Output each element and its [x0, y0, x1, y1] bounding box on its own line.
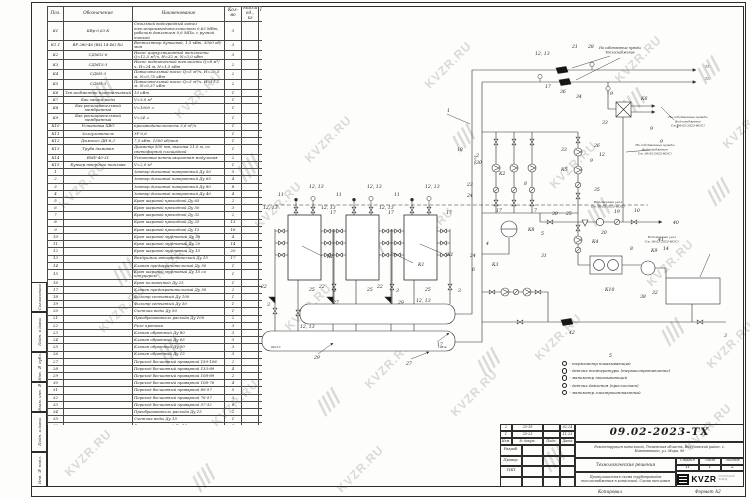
sheet-title: Принципиальная схема трубопроводов тепло… [575, 472, 676, 487]
diagram-label: 5 [541, 231, 544, 237]
role-cell [560, 445, 575, 456]
diagram-label: К8 [527, 227, 535, 233]
role-cell [543, 456, 560, 467]
diagram-label: 22 [318, 284, 325, 290]
diagram-label: 24 [466, 193, 473, 199]
diagram-label: 22 [260, 284, 267, 290]
diagram-label: 27 [405, 361, 412, 367]
diagram-label: 9 [650, 126, 653, 132]
revision-cell [543, 431, 560, 438]
diagram-label: 3 [396, 288, 399, 294]
role-cell [560, 477, 575, 488]
diagram-label: 21 [571, 44, 578, 50]
diagram-label: 38 [640, 294, 646, 300]
role-cell [500, 477, 522, 488]
diagram-label: 6 [472, 267, 475, 273]
document-number: 09.02-2023-ТХ [575, 424, 744, 442]
diagram-label: 26 [593, 143, 600, 149]
role-cell [522, 445, 543, 456]
diagram-label: 4 [485, 241, 489, 247]
stage-value: 1 [699, 465, 721, 472]
diagram-label: 25 [308, 287, 315, 293]
diagram-label: 8 [524, 181, 527, 187]
section-name: Технологические решения [575, 458, 676, 472]
kvzr-logo: KVZR КОТЕЛЬНЫЙ ЗАВОД [677, 474, 743, 485]
diagram-label: 7 [534, 208, 537, 214]
supply-main [455, 70, 696, 314]
revision-header: № докум. [512, 438, 543, 445]
diagram-label: 17 [545, 84, 551, 90]
diagram-label: 12, 13 [416, 298, 431, 304]
legend-item: - датчик давления (прессостат) [562, 382, 712, 389]
role-cell [522, 477, 543, 488]
diagram-label: 12, 13 [300, 324, 315, 330]
diagram-label: К1 [446, 252, 454, 258]
diagram-label: 10 [634, 208, 640, 214]
legend-item: - манометр электроконтактный [562, 389, 712, 396]
diagram-label: 33 [602, 120, 608, 126]
role-cell [543, 466, 560, 477]
diagram-label: 25 [424, 287, 431, 293]
role-cell [560, 456, 575, 467]
diagram-label: 12 [599, 152, 605, 158]
diagram-label: 1 [447, 108, 450, 114]
diagram-callout-line: Теплоснабжение [605, 51, 634, 55]
revision-cell: 11.23 [560, 431, 575, 438]
diagram-label: 42 [568, 330, 575, 336]
diagram-label: 89х3,5 [271, 345, 281, 349]
diagram-label: К1 [326, 254, 334, 260]
diagram-label: 29 [397, 300, 404, 306]
diagram-callout-line: На собственные нужды [598, 46, 641, 50]
diagram-label: 14 [663, 246, 669, 252]
diagram-callout-line: См. 09.02-2023-ИОС1 [671, 124, 705, 128]
revision-cell: 02.24 [560, 424, 575, 431]
tank-k9 [641, 261, 655, 275]
instrument-circle-icon [562, 361, 567, 366]
logo-cell: KVZR КОТЕЛЬНЫЙ ЗАВОД [676, 471, 744, 487]
title-block: 09.02-2023-ТХ Реконструкция котельной, Т… [500, 424, 744, 487]
kvzr-logo-icon [677, 474, 689, 485]
diagram-label: 30 [476, 160, 482, 166]
drawing-sheet: KVZR.RUKVZR.RUKVZR.RUKVZR.RUKVZR.RUKVZR.… [0, 0, 750, 500]
diagram-label: 24 [469, 253, 476, 259]
diagram-label: 11 [394, 192, 400, 198]
diagram-label: 11 [336, 192, 342, 198]
diagram-label: 12, 13 [263, 205, 278, 211]
diagram-label: 12, 13 [535, 51, 550, 57]
revision-cell: 25-19 [512, 424, 543, 431]
role-cell: Провер. [500, 456, 522, 467]
diagram-label: 30 [552, 211, 558, 217]
diagram-label: 25 [366, 287, 373, 293]
role-cell [522, 456, 543, 467]
diagram-label: 18 [457, 147, 463, 153]
diagram-label: 28 [587, 44, 594, 50]
stage-value: 2 [721, 465, 744, 472]
diagram-label: 108х4 [438, 345, 447, 349]
copied-label: Копировал [598, 489, 622, 494]
legend: - термометр показывающий- датчик темпера… [562, 360, 712, 396]
revision-cell: 1 [500, 431, 512, 438]
diagram-label: К3 [491, 262, 499, 268]
instrument-circle-icon [562, 368, 567, 373]
diagram-label: 36 [560, 89, 566, 95]
role-cell [543, 477, 560, 488]
instrument-circle-icon [562, 375, 567, 380]
diagram-label: 5 [609, 353, 612, 359]
diagram-label: Т2 [705, 77, 709, 81]
diagram-callouts: На собственные нуждыТеплоснабжениеНа соб… [591, 46, 708, 243]
diagram-label: 19 [614, 209, 620, 215]
diagram-label: Т1 [705, 65, 709, 69]
revision-cell: 2 [500, 424, 512, 431]
project-description: Реконструкция котельной, Тюменская облас… [575, 442, 744, 458]
diagram-label: 9 [590, 158, 593, 164]
role-cell: ГИП [500, 466, 522, 477]
role-cell [522, 466, 543, 477]
stage-value: П [676, 465, 699, 472]
legend-item: - термометр показывающий [562, 360, 712, 367]
legend-item: - манометр показывающий [562, 374, 712, 381]
revision-header: Подп. [543, 438, 560, 445]
diagram-label: К1 [417, 262, 425, 268]
diagram-label: 31 [541, 253, 547, 259]
diagram-label: 9 [610, 91, 613, 97]
diagram-label: 23 [466, 182, 473, 188]
diagram-label: 17 [330, 210, 336, 216]
diagram-label: 17 [446, 210, 452, 216]
diagram-label: 32 [652, 290, 658, 296]
diagram-label: К2 [498, 171, 506, 177]
diagram-label: 3 [267, 302, 270, 308]
diagram-label: К4 [591, 239, 599, 245]
diagram-label: К9 [650, 248, 658, 254]
diagram-label: 12, 13 [309, 184, 324, 190]
diagram-label: 3 [458, 288, 461, 294]
diagram-callout-line: См. 09.02-2023-ИОС1 [591, 204, 625, 208]
diagram-label: 29 [313, 355, 320, 361]
instrument-circle-icon [562, 390, 567, 395]
diagram-label: К10 [604, 287, 614, 293]
role-cell [543, 445, 560, 456]
diagram-label: 3 [724, 333, 727, 339]
diagram-label: К6 [640, 96, 648, 102]
diagram-label: 17 [496, 208, 502, 214]
diagram-label: 27 [332, 300, 339, 306]
diagram-label: 22 [376, 284, 383, 290]
storage-tank-k7 [666, 278, 720, 304]
diagram-label: 17 [388, 210, 394, 216]
diagram-callout-line: См. 09.02-2023-ИОС1 [645, 239, 679, 243]
diagram-label: К5 [560, 167, 568, 173]
kvzr-logo-text: KVZR [691, 474, 716, 484]
role-cell: Разраб. [500, 445, 522, 456]
diagram-label: 8 [630, 246, 633, 252]
revision-header: Изм. [500, 438, 512, 445]
instrument-circle-icon [562, 383, 567, 388]
diagram-label: 3 [333, 288, 336, 294]
diagram-label: 25 [565, 211, 572, 217]
revision-cell [543, 424, 560, 431]
revision-cell: 25-23 [512, 431, 543, 438]
format-label: Формат А2 [695, 489, 721, 494]
diagram-label: 40 [672, 220, 679, 226]
supply-header [300, 304, 455, 324]
diagram-label: 33 [561, 147, 567, 153]
diagram-label: 20 [600, 230, 607, 236]
diagram-label: 11 [278, 192, 284, 198]
diagram-label: 34 [576, 94, 582, 100]
diagram-callout-line: См. 09.02-2023-ИОС1 [638, 152, 672, 156]
diagram-label: 2 [475, 153, 479, 159]
role-cell [560, 466, 575, 477]
return-header [262, 331, 455, 351]
revision-header: Дата [560, 438, 575, 445]
diagram-label: 12, 13 [425, 184, 440, 190]
diagram-label: 35 [594, 187, 600, 193]
diagram-label: 12, 13 [367, 184, 382, 190]
legend-item: - датчик температуры (термосопротивление… [562, 367, 712, 374]
kvzr-logo-subtext: КОТЕЛЬНЫЙ ЗАВОД [719, 476, 743, 482]
